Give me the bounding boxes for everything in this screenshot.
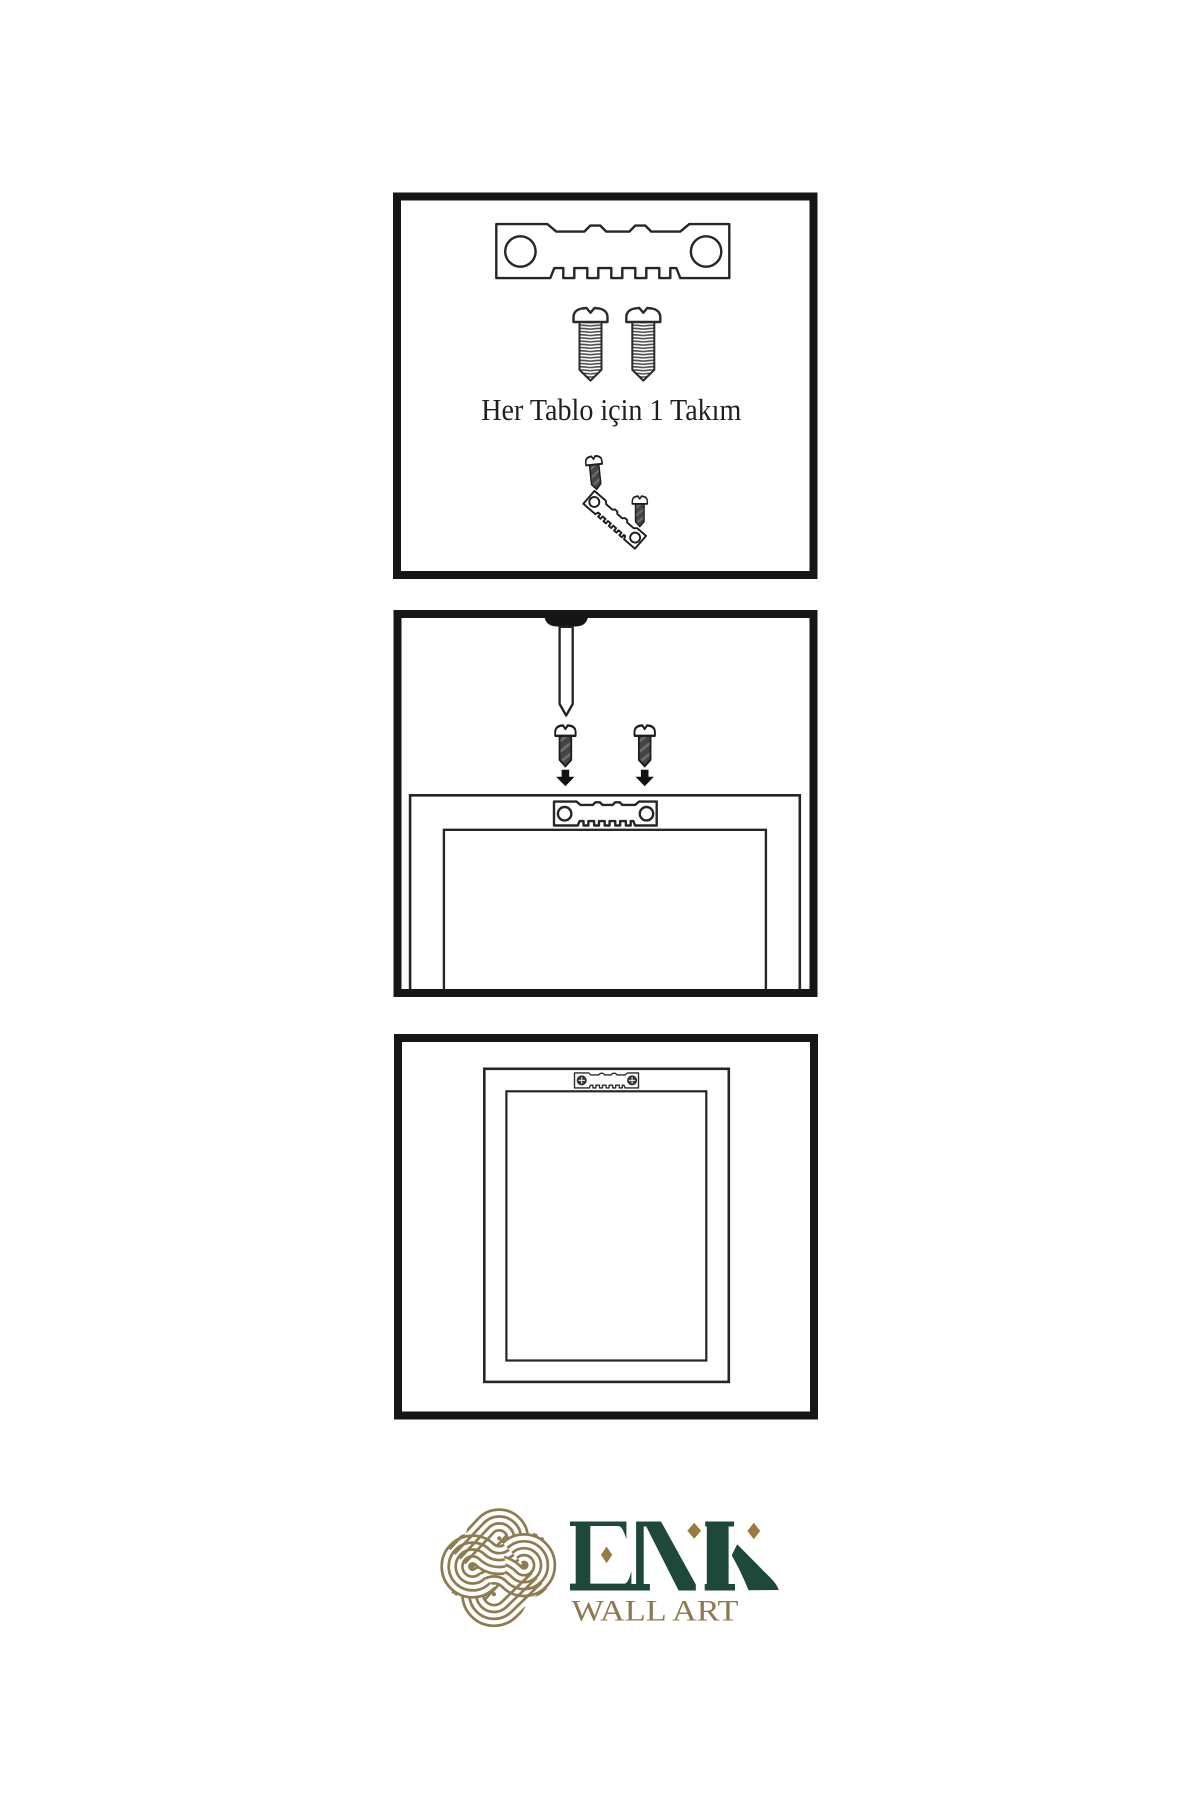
svg-text:WALL ART: WALL ART bbox=[572, 1595, 739, 1628]
svg-text:Her Tablo için 1 Takım: Her Tablo için 1 Takım bbox=[481, 392, 741, 427]
